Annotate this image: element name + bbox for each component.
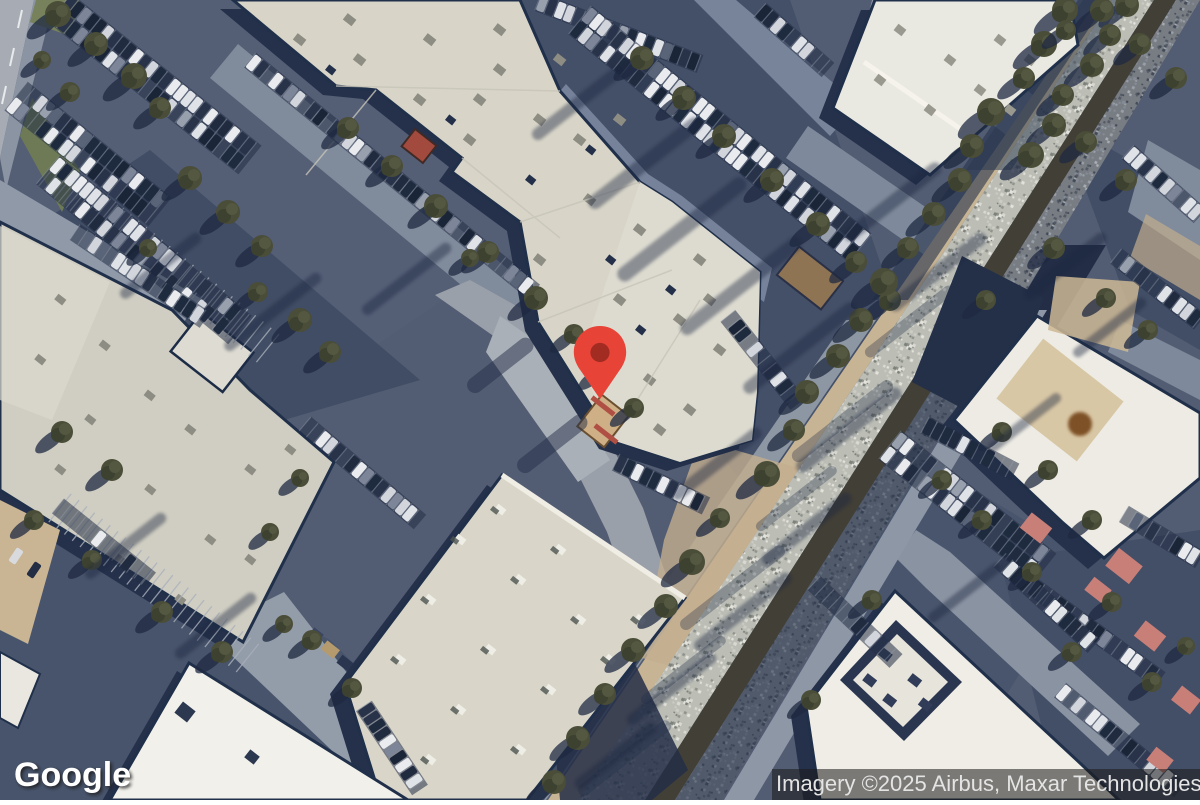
svg-text:Imagery ©2025 Airbus, Maxar Te: Imagery ©2025 Airbus, Maxar Technologies (776, 771, 1200, 796)
svg-text:Google: Google (14, 756, 131, 794)
